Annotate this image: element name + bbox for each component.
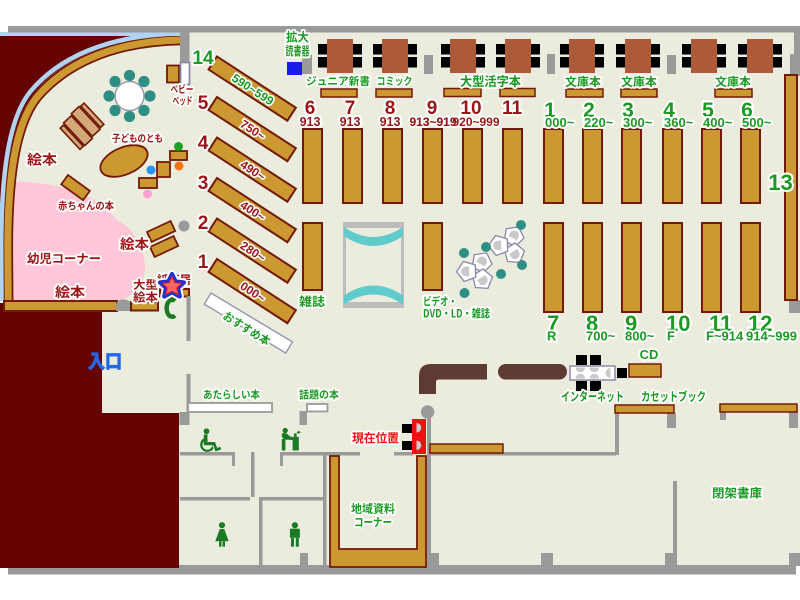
svg-text:4: 4 — [198, 133, 209, 154]
svg-text:360~: 360~ — [664, 115, 694, 130]
svg-text:R: R — [547, 329, 557, 344]
svg-text:F: F — [667, 329, 675, 344]
svg-text:000~: 000~ — [545, 115, 575, 130]
svg-text:2: 2 — [198, 213, 209, 234]
svg-text:13: 13 — [768, 170, 792, 195]
svg-text:700~: 700~ — [586, 329, 616, 344]
svg-text:F~914: F~914 — [706, 329, 744, 344]
svg-text:14: 14 — [192, 48, 214, 69]
svg-text:913: 913 — [300, 115, 321, 129]
svg-text:300~: 300~ — [623, 115, 653, 130]
svg-text:914~999: 914~999 — [746, 329, 797, 344]
svg-text:913~919: 913~919 — [409, 115, 456, 129]
svg-text:3: 3 — [198, 173, 209, 194]
svg-text:400~: 400~ — [703, 115, 733, 130]
svg-text:913: 913 — [380, 115, 401, 129]
svg-text:220~: 220~ — [584, 115, 614, 130]
svg-text:500~: 500~ — [742, 115, 772, 130]
svg-text:800~: 800~ — [625, 329, 655, 344]
svg-text:5: 5 — [198, 93, 209, 114]
svg-text:11: 11 — [502, 98, 523, 119]
svg-text:920~999: 920~999 — [452, 115, 499, 129]
svg-text:CD: CD — [640, 347, 659, 362]
svg-text:1: 1 — [198, 252, 209, 273]
svg-text:913: 913 — [340, 115, 361, 129]
